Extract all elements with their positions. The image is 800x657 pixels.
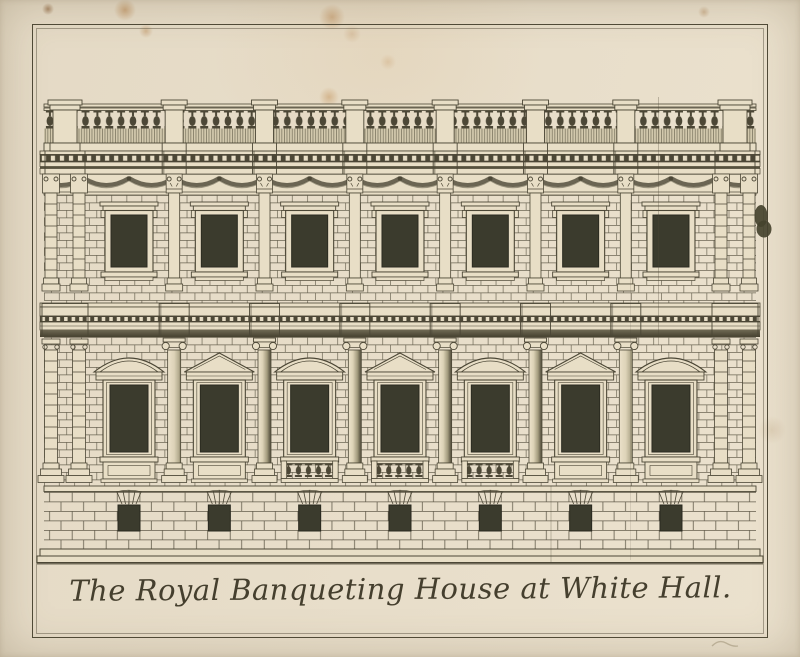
balustrade-pedestal xyxy=(251,100,277,151)
upper-window xyxy=(281,202,339,281)
window-apron-panel xyxy=(191,462,247,483)
window-apron-panel xyxy=(553,462,609,483)
end-pedestal xyxy=(48,100,82,151)
swag-frieze xyxy=(44,174,756,195)
pencil-mark xyxy=(712,642,738,647)
balustrade-pedestal xyxy=(342,100,368,151)
balustrade-pedestal xyxy=(613,100,639,151)
lower-window xyxy=(186,372,252,462)
upper-end-pilaster xyxy=(42,174,60,291)
garland-swags xyxy=(44,175,756,192)
upper-window xyxy=(642,202,700,281)
facade-engraving xyxy=(0,0,800,657)
upper-end-pilaster xyxy=(70,174,88,291)
baluster-row xyxy=(44,111,756,129)
upper-end-pilaster xyxy=(740,174,758,291)
window-apron-balustrade xyxy=(371,461,428,483)
balustrade-pedestal xyxy=(161,100,187,151)
cornice-shadow-band xyxy=(40,330,760,337)
upper-window xyxy=(552,202,610,281)
window-apron-panel xyxy=(643,462,699,483)
lower-window xyxy=(548,372,614,462)
plate-caption: The Royal Banqueting House at White Hall… xyxy=(33,570,768,608)
lower-window xyxy=(96,372,162,462)
dentil-course xyxy=(40,316,760,322)
lower-window xyxy=(638,372,704,462)
dentil-course xyxy=(40,155,760,163)
ink-blemish xyxy=(755,205,772,238)
lower-window xyxy=(367,372,433,462)
upper-end-pilaster xyxy=(712,174,730,291)
upper-window xyxy=(100,202,158,281)
balustrade xyxy=(44,104,756,151)
mid-entablature xyxy=(40,303,760,337)
upper-window xyxy=(190,202,248,281)
window-apron-balustrade xyxy=(281,461,338,483)
plinth xyxy=(37,549,763,564)
window-apron-panel xyxy=(101,462,157,483)
upper-window xyxy=(461,202,519,281)
upper-window xyxy=(371,202,429,281)
end-pedestal xyxy=(718,100,752,151)
window-apron-balustrade xyxy=(462,461,519,483)
lower-window xyxy=(457,372,523,462)
main-cornice xyxy=(40,151,760,174)
balustrade-pedestal xyxy=(432,100,458,151)
lower-window xyxy=(277,372,343,462)
balustrade-pedestal xyxy=(522,100,548,151)
engraving-page: { "artwork": { "caption": "The Royal Ban… xyxy=(0,0,800,657)
